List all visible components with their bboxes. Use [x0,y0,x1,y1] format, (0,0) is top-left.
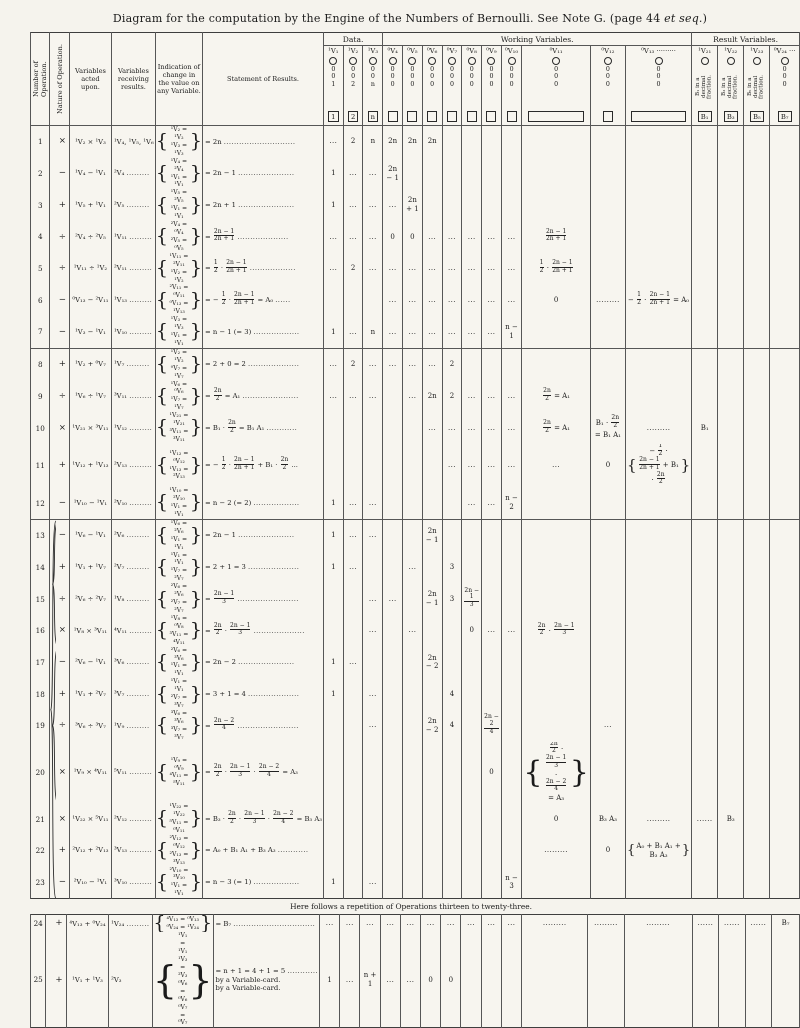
cell-r23-v2 [343,867,363,899]
cell-r20-v4 [383,742,403,804]
initial-value: 0 [510,73,514,81]
fraction: 2n − 13 [213,591,235,605]
value-box [388,111,398,122]
cell-r2-v6 [422,158,442,190]
cell-r12-indication: {¹V₁₀ = ²V₁₀¹V₁ = ¹V₁} [155,487,202,519]
cell-r23-v5 [403,867,423,899]
cell-r16-v23 [744,615,770,647]
cell-r17-v12 [590,647,625,679]
cell-r17-v11 [522,647,591,679]
cell-r4-v7: ... [442,221,462,253]
initial-value: 0 [331,73,335,81]
operation-row-24: 24+⁴V₁₃ + ⁰V₂₄¹V₂₄ .........{⁴V₁₃ = ⁰V₁₃… [31,915,800,933]
cell-r12-v13 [625,487,691,519]
cell-r25-v6: 0 [421,932,441,1028]
cell-r5-receiving: ²V₁₁ ......... [111,253,155,285]
cell-r25-v21 [692,932,719,1028]
op-number-3: 3 [31,189,50,221]
cell-r21-v11: 0 [522,803,591,835]
fraction: 2n − 12n + 1 [638,457,660,471]
index-circle-icon [655,57,663,65]
cell-r5-v5: ... [403,253,423,285]
cell-r8-v4: ... [383,348,403,380]
cell-r12-v24 [770,487,800,519]
op-number-11: 11 [31,444,50,487]
cell-r22-v8 [462,835,482,867]
cell-r17-statement: = 2n − 2 ...................... [203,647,324,679]
cell-r25-v1: 1 [320,932,340,1028]
value-box: n [368,111,378,122]
cell-r14-v7: 3 [442,552,462,584]
column-header-v3: ¹V₃00nn [363,46,383,126]
cell-r3-v23 [744,189,770,221]
cell-r12-acted: ¹V₁₀ − ¹V₁ [69,487,111,519]
cell-r22-v11: ......... [522,835,591,867]
value-box: 2 [348,111,358,122]
op-number-19: 19 [31,710,50,742]
cell-r2-v21 [692,158,718,190]
fraction: 2n − 13 [229,764,251,778]
cell-r10-v9: ... [482,412,502,444]
cell-r5-v3: ... [363,253,383,285]
cell-r20-v11: {2n2 · 2n − 13 · 2n − 24= A₃} [522,742,591,804]
cell-r17-v4 [383,647,403,679]
cell-r1-v2: 2 [343,126,363,158]
cell-r2-v7 [442,158,462,190]
cell-r21-v22: B₃ [718,803,744,835]
variable-label: ⁰V₁₁ [550,48,563,55]
cell-r17-v22 [718,647,744,679]
cell-r24-v6: ... [421,915,441,933]
fraction: 2n2 [213,764,223,778]
operation-row-5: 5÷¹V₁₁ ÷ ¹V₂²V₁₁ .........{¹V₁₁ = ²V₁₁¹V… [31,253,800,285]
cell-r19-v24 [770,710,800,742]
cell-r23-v22 [718,867,744,899]
band-data: Data. [323,33,382,46]
initial-value: 0 [606,66,610,74]
initial-value: 0 [489,66,493,74]
cell-r3-v8 [462,189,482,221]
op-number-20: 20 [31,742,50,804]
cell-r14-indication: {¹V₁ = ¹V₁¹V₇ = ²V₇} [155,552,202,584]
cell-r24-v9: ... [481,915,501,933]
cell-r18-v8 [462,678,482,710]
cell-r22-v4 [383,835,403,867]
cell-r6-v23 [744,284,770,316]
cell-r3-v7 [442,189,462,221]
cell-r19-v13 [625,710,691,742]
cell-r15-v22 [718,583,744,615]
cell-r4-v1: ... [323,221,343,253]
cell-r21-v9 [482,803,502,835]
op-number-4: 4 [31,221,50,253]
value-box [631,111,685,122]
cell-r19-v11 [522,710,591,742]
cell-r5-acted: ¹V₁₁ ÷ ¹V₂ [69,253,111,285]
cell-r10-receiving: ¹V₁₂ ......... [111,412,155,444]
cell-r3-v5: 2n + 1 [403,189,423,221]
fraction: 2n − 12n + 1 [233,457,255,471]
cell-r17-v24 [770,647,800,679]
cell-r1-acted: ¹V₂ × ¹V₃ [69,126,111,158]
cell-r25-v2: ... [340,932,360,1028]
cell-r7-v3: n [363,316,383,348]
operation-row-1: 1×¹V₂ × ¹V₃¹V₄, ¹V₅, ¹V₆{¹V₂ = ¹V₂¹V₃ = … [31,126,800,158]
cell-r10-v6: ... [422,412,442,444]
cell-r22-v2 [343,835,363,867]
cell-r25-v24 [772,932,800,1028]
op-number-12: 12 [31,487,50,519]
fraction: 2n − 13 [229,623,251,637]
cell-r7-v7: ... [442,316,462,348]
fraction: 2n − 24 [483,714,500,735]
operation-row-4: 4÷²V₄ ÷ ²V₅¹V₁₁ .........{²V₄ = ⁰V₄²V₅ =… [31,221,800,253]
cell-r4-v9: ... [482,221,502,253]
cell-r12-v1: 1 [323,487,343,519]
cell-r2-v2: ... [343,158,363,190]
cell-r4-v11: 2n − 12n + 1 [522,221,591,253]
cell-r8-v9 [482,348,502,380]
cell-r16-v8: 0 [462,615,482,647]
fraction: 12 [213,260,219,274]
cell-r18-v10 [501,678,521,710]
cell-r2-receiving: ²V₄ ......... [111,158,155,190]
cell-r3-v22 [718,189,744,221]
scanned-page: Diagram for the computation by the Engin… [0,0,800,1028]
cell-r8-v11 [522,348,591,380]
cell-r3-receiving: ²V₅ ......... [111,189,155,221]
operation-sign-6: − [56,284,70,316]
cell-r5-v10: ... [501,253,521,285]
cell-r17-v2: ... [343,647,363,679]
cell-r19-v5 [403,710,423,742]
initial-value: 0 [391,81,395,89]
variable-label: ⁰V₁₃ ········· [641,48,676,55]
cell-r20-v3 [363,742,383,804]
cell-r21-v8 [462,803,482,835]
cell-r16-v24 [770,615,800,647]
cell-r6-v11: 0 [522,284,591,316]
cell-r9-v10: ... [501,381,521,413]
cell-r6-v21 [692,284,718,316]
page-title-text: Diagram for the computation by the Engin… [113,12,664,25]
cell-r8-receiving: ¹V₇ ......... [111,348,155,380]
cell-r15-v10 [501,583,521,615]
cell-r8-v12 [590,348,625,380]
cell-r19-v2 [343,710,363,742]
cell-r15-v4: ... [383,583,403,615]
index-circle-icon [428,57,436,65]
value-box [407,111,417,122]
cell-r22-v9 [482,835,502,867]
cell-r15-v8: 2n − 13 [462,583,482,615]
cell-r6-indication: {²V₁₁ = ⁰V₁₁⁰V₁₃ = ¹V₁₃} [155,284,202,316]
cell-r18-v9 [482,678,502,710]
op-number-1: 1 [31,126,50,158]
operation-row-12: 12−¹V₁₀ − ¹V₁²V₁₀ .........{¹V₁₀ = ²V₁₀¹… [31,487,800,519]
cell-r3-v4: ... [383,189,403,221]
cell-r2-v3: ... [363,158,383,190]
cell-r25-v23 [745,932,772,1028]
cell-r13-v4 [383,519,403,551]
op-number-21: 21 [31,803,50,835]
cell-r25-v7: 0 [441,932,461,1028]
cell-r22-v21 [692,835,718,867]
cell-r21-v21: ...... [692,803,718,835]
cell-r14-v13 [625,552,691,584]
cell-r9-v24 [770,381,800,413]
cell-r13-v5 [403,519,423,551]
cell-r14-v9 [482,552,502,584]
cell-r11-v12: 0 [590,444,625,487]
result-description: B₃ in a decimal fraction. [722,67,740,107]
cell-r1-v10 [501,126,521,158]
column-header-v24: ⁰V₂₄ ···000B₇ [770,46,800,126]
cell-r15-v6: 2n − 1 [422,583,442,615]
cell-r15-v23 [744,583,770,615]
cell-r9-v9: ... [482,381,502,413]
cell-r16-v11: 2n2 · 2n − 13 [522,615,591,647]
cell-r22-acted: ²V₁₂ + ²V₁₃ [69,835,111,867]
operation-sign-2: − [56,158,70,190]
cell-r15-v13 [625,583,691,615]
cell-r3-statement: = 2n + 1 ...................... [203,189,324,221]
cell-r22-statement: = A₀ + B₁ A₁ + B₃ A₃ ............ [203,835,324,867]
cell-r12-v4 [383,487,403,519]
cell-r23-v8 [462,867,482,899]
cell-r19-v21 [692,710,718,742]
result-description: B₁ in a decimal fraction. [696,67,714,107]
cell-r21-acted: ¹V₂₂ × ⁵V₁₁ [69,803,111,835]
op-number-8: 8 [31,348,50,380]
cell-r19-v9: 2n − 24 [482,710,502,742]
cell-r24-v5: ... [400,915,420,933]
cell-r21-v5 [403,803,423,835]
initial-value: 0 [783,81,787,89]
cell-r20-v6 [422,742,442,804]
initial-value: 0 [657,81,661,89]
cell-r9-v22 [718,381,744,413]
cell-r11-acted: ¹V₁₂ + ¹V₁₃ [69,444,111,487]
cell-r6-v13: − 12 · 2n − 12n + 1 = A₀ [625,284,691,316]
variable-label: ⁰V₁₂ [601,48,614,55]
cell-r12-v21 [692,487,718,519]
cell-r6-receiving: ¹V₁₃ ......... [111,284,155,316]
cell-r16-v21 [692,615,718,647]
cell-r7-v23 [744,316,770,348]
variable-label: ¹V₂ [348,48,358,55]
initial-value: 0 [606,81,610,89]
cell-r12-v7 [442,487,462,519]
cell-r11-v7: ... [442,444,462,487]
cell-r6-v5: ... [403,284,423,316]
cell-r16-v7 [442,615,462,647]
cell-r12-v2: ... [343,487,363,519]
op-number-6: 6 [31,284,50,316]
cell-r13-acted: ¹V₆ − ¹V₁ [69,519,111,551]
initial-value: 0 [371,66,375,74]
value-box [528,111,584,122]
initial-value: 0 [351,66,355,74]
operation-row-6: 6−⁰V₁₃ − ²V₁₁¹V₁₃ .........{²V₁₁ = ⁰V₁₁⁰… [31,284,800,316]
cell-r3-indication: {¹V₅ = ²V₅¹V₁ = ¹V₁} [155,189,202,221]
cell-r10-v23 [744,412,770,444]
cell-r13-v21 [692,519,718,551]
cell-r10-v11: 2n2 = A₁ [522,412,591,444]
cell-r16-v22 [718,615,744,647]
cell-r13-v23 [744,519,770,551]
cell-r11-v2 [343,444,363,487]
cell-r10-v7: ... [442,412,462,444]
cell-r13-v8 [462,519,482,551]
cell-r8-v10 [501,348,521,380]
cell-r5-v7: ... [442,253,462,285]
cell-r24-v3: ... [360,915,380,933]
initial-value: 2 [351,81,355,89]
cell-r18-v24 [770,678,800,710]
column-header-v12: ⁰V₁₂000 [590,46,625,126]
fraction: 2n − 24 [258,764,280,778]
cell-r1-v9 [482,126,502,158]
cell-r22-v3 [363,835,383,867]
cell-r16-statement: = 2n2 · 2n − 13 .................... [203,615,324,647]
cell-r14-v24 [770,552,800,584]
cell-r21-v6 [422,803,442,835]
cell-r9-v5: ... [403,381,423,413]
value-box: B₅ [750,111,764,122]
cell-r23-receiving: ³V₁₀ ......... [111,867,155,899]
fraction: 2n2 [656,472,666,486]
cell-r10-v1 [323,412,343,444]
cell-r3-v13 [625,189,691,221]
index-circle-icon [701,57,709,65]
band-working-variables: Working Variables. [383,33,692,46]
cell-r8-statement: = 2 + 0 = 2 .................... [203,348,324,380]
operation-sign-18: + [56,678,70,710]
cell-r13-v10 [501,519,521,551]
cell-r4-v12 [590,221,625,253]
cell-r16-v4 [383,615,403,647]
cell-r10-acted: ¹V₂₁ × ³V₁₁ [69,412,111,444]
cell-r25-acted: ¹V₁ + ¹V₃ [66,932,108,1028]
cell-r18-v11 [522,678,591,710]
cell-r15-v24 [770,583,800,615]
operation-sign-15: ÷ [56,583,70,615]
cell-r8-acted: ¹V₂ + ⁰V₇ [69,348,111,380]
cell-r11-v24 [770,444,800,487]
cell-r11-v3 [363,444,383,487]
initial-value: 0 [657,73,661,81]
cell-r9-v7: 2 [442,381,462,413]
cell-r13-v3: ... [363,519,383,551]
header-band-row: Number of Operation. Nature of Operation… [31,33,800,46]
cell-r8-v13 [625,348,691,380]
initial-value: 0 [430,73,434,81]
cell-r2-v4: 2n − 1 [383,158,403,190]
operation-sign-13: − [56,519,70,551]
fraction: 2n2 [610,415,620,429]
cell-r6-v1 [323,284,343,316]
cell-r2-v1: 1 [323,158,343,190]
column-header-v13: ⁰V₁₃ ·········000 [625,46,691,126]
cell-r9-receiving: ³V₁₁ ......... [111,381,155,413]
cell-r14-v12 [590,552,625,584]
cell-r25-statement: = n + 1 = 4 + 1 = 5 ............by a Var… [213,932,320,1028]
fraction: 2n2 [537,623,547,637]
cell-r17-acted: ²V₆ − ¹V₁ [69,647,111,679]
cell-r10-v10: ... [501,412,521,444]
operation-sign-4: ÷ [56,221,70,253]
cell-r7-statement: = n − 1 (= 3) .................. [203,316,324,348]
cell-r18-v21 [692,678,718,710]
cell-r3-v2: ... [343,189,363,221]
operation-row-25: 25+¹V₁ + ¹V₃²V₃{¹V₁ = ¹V₁¹V₃ = ²V₃⁰V₆ = … [31,932,800,1028]
cell-r25-v13 [624,932,692,1028]
cell-r25-v11 [522,932,588,1028]
operation-sign-20: × [56,742,70,804]
cell-r18-v1: 1 [323,678,343,710]
cell-r7-v9: ... [482,316,502,348]
cell-r14-v21 [692,552,718,584]
variable-label: ¹V₂₁ [698,48,711,55]
cell-r20-v24 [770,742,800,804]
cell-r24-v11: ......... [522,915,588,933]
cell-r4-v24 [770,221,800,253]
fraction: 2n2 [280,457,290,471]
cell-r20-v21 [692,742,718,804]
cell-r23-v6 [422,867,442,899]
operation-row-16: 16×¹V₈ × ³V₁₁⁴V₁₁ .........{¹V₈ = ⁰V₈³V₁… [31,615,800,647]
cell-r25-v9 [481,932,501,1028]
cell-r1-v21 [692,126,718,158]
cell-r10-v5 [403,412,423,444]
cell-r9-v4 [383,381,403,413]
operation-sign-7: − [56,316,70,348]
op-number-14: 14 [31,552,50,584]
cell-r18-v13 [625,678,691,710]
cell-r25-v22 [719,932,746,1028]
cell-r12-v12 [590,487,625,519]
cell-r18-acted: ¹V₁ + ²V₇ [69,678,111,710]
cell-r18-v4 [383,678,403,710]
cell-r25-v3: n + 1 [360,932,380,1028]
cell-r18-v3: ... [363,678,383,710]
cell-r18-v5 [403,678,423,710]
fraction: 2n − 24 [272,811,294,825]
index-circle-icon [508,57,516,65]
cell-r3-v21 [692,189,718,221]
index-circle-icon [604,57,612,65]
cell-r7-v24 [770,316,800,348]
variable-label: ⁰V₁₀ [505,48,518,55]
cell-r7-v13 [625,316,691,348]
value-box [507,111,517,122]
cell-r18-v7: 4 [442,678,462,710]
operation-sign-23: − [56,867,70,899]
cell-r11-indication: {¹V₁₂ = ⁰V₁₂¹V₁₃ = ²V₁₃} [155,444,202,487]
cell-r21-v3 [363,803,383,835]
variable-label: ⁰V₆ [427,48,437,55]
cell-r10-v3 [363,412,383,444]
cell-r3-v3: ... [363,189,383,221]
index-circle-icon [552,57,560,65]
cell-r17-v23 [744,647,770,679]
cell-r13-v22 [718,519,744,551]
header-variables-receiving: Variables receiving results. [111,33,155,126]
cell-r9-acted: ¹V₆ ÷ ¹V₇ [69,381,111,413]
cell-r11-v9: ... [482,444,502,487]
cell-r18-v22 [718,678,744,710]
